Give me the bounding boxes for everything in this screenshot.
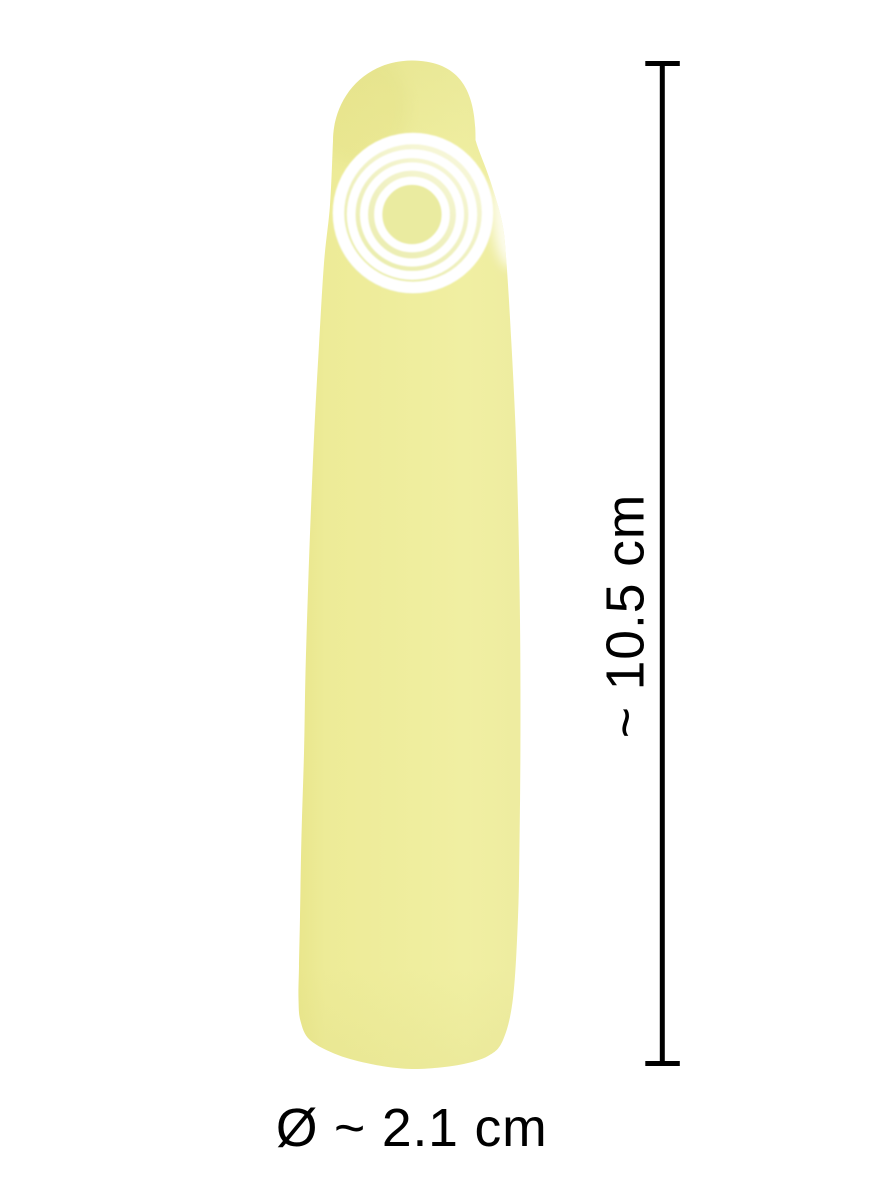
svg-text:~ 10.5 cm: ~ 10.5 cm — [597, 494, 656, 739]
svg-text:Ø ~ 2.1 cm: Ø ~ 2.1 cm — [276, 1099, 548, 1158]
